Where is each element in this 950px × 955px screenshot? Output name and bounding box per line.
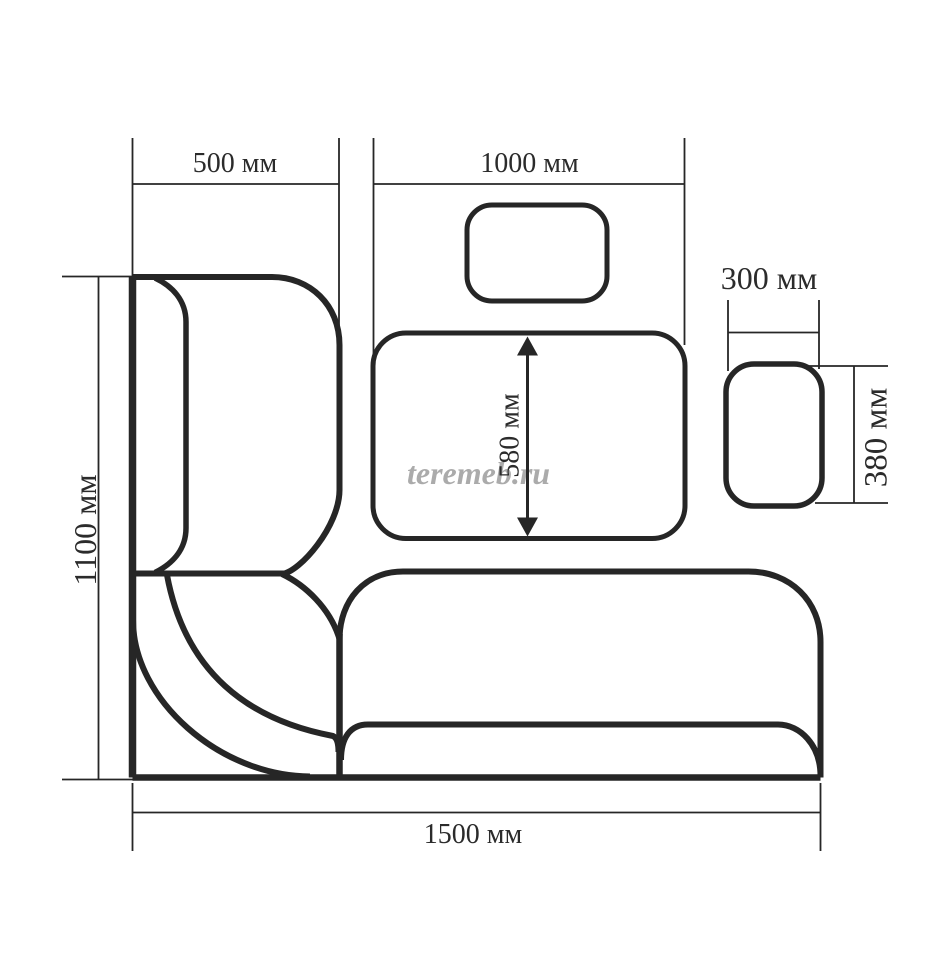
svg-text:300 мм: 300 мм [721,260,818,296]
svg-text:1100 мм: 1100 мм [67,474,103,585]
svg-text:500 мм: 500 мм [193,148,278,179]
svg-text:1000 мм: 1000 мм [480,148,579,179]
svg-text:380 мм: 380 мм [859,388,895,488]
svg-text:1500 мм: 1500 мм [424,819,523,850]
svg-text:580 мм: 580 мм [495,393,526,478]
